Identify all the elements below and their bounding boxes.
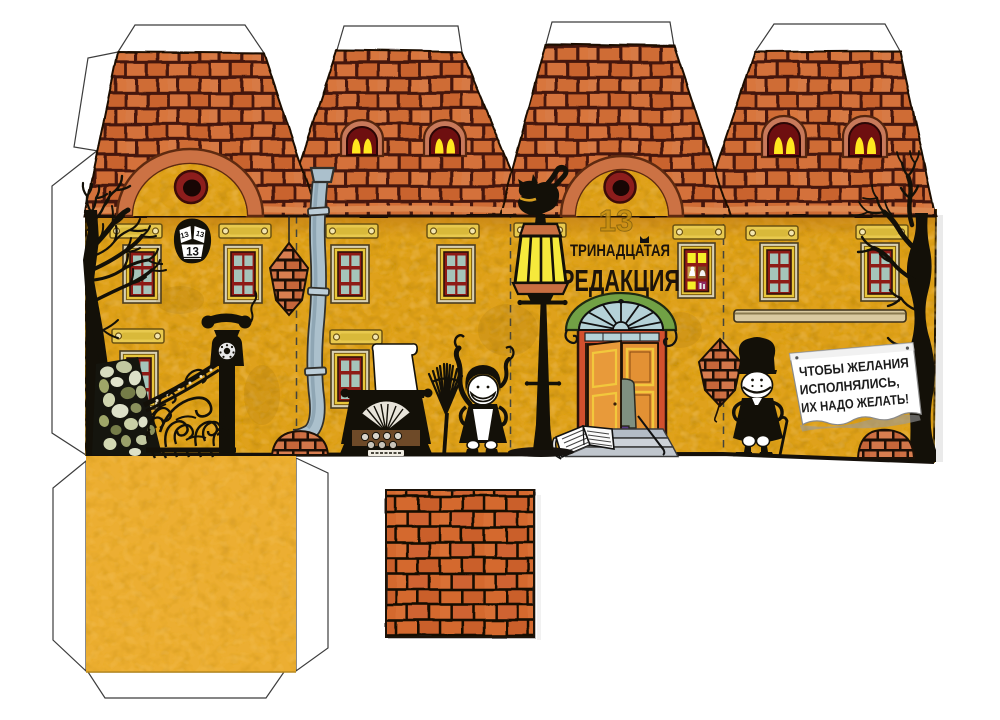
- svg-text:13: 13: [599, 203, 633, 238]
- svg-text:13: 13: [186, 247, 199, 259]
- svg-text:ТРИНАДЦАТАЯ: ТРИНАДЦАТАЯ: [570, 241, 670, 260]
